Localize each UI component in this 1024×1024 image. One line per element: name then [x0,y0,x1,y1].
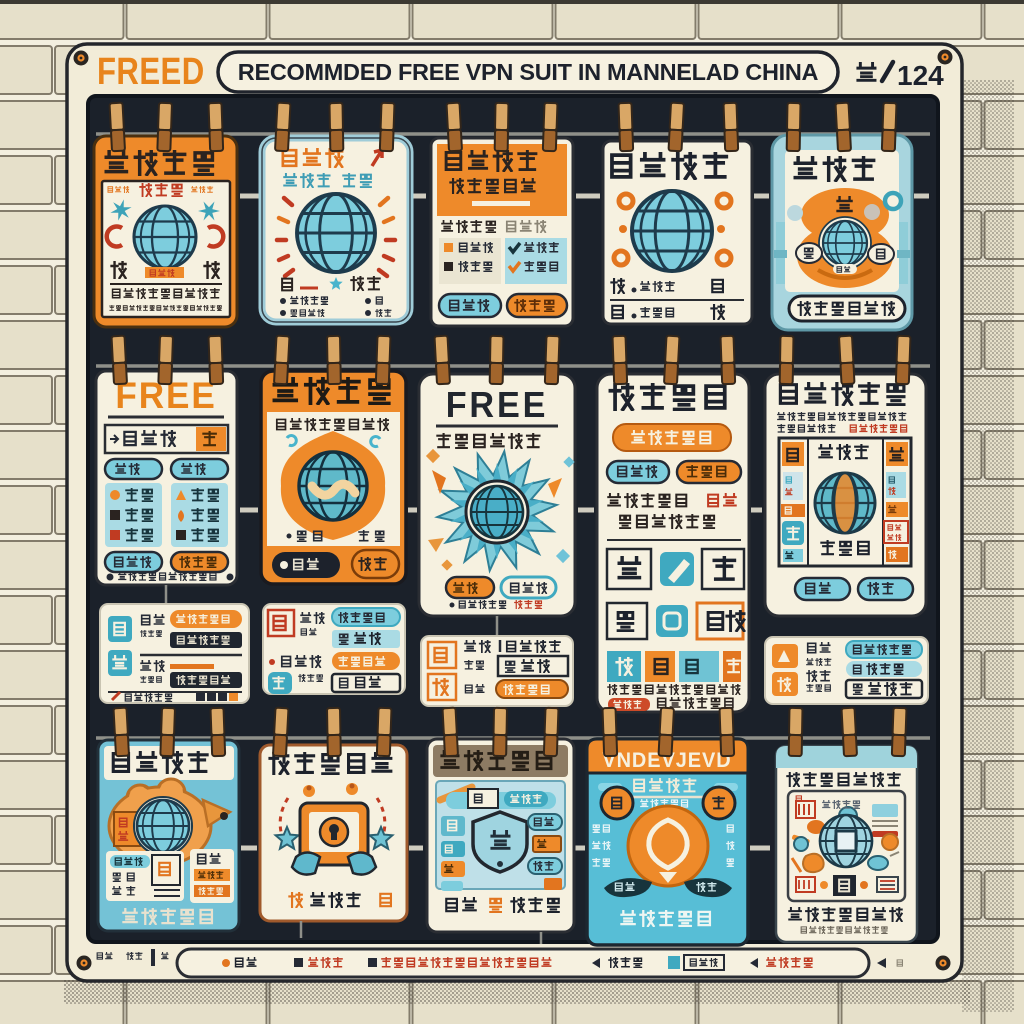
svg-text:RECOMMDED FREE VPN SUIT IN MAN: RECOMMDED FREE VPN SUIT IN MANNELAD CHIN… [238,59,819,85]
svg-text:FREE: FREE [446,385,549,425]
svg-text:124: 124 [897,60,944,91]
svg-text:FREED: FREED [97,51,205,93]
